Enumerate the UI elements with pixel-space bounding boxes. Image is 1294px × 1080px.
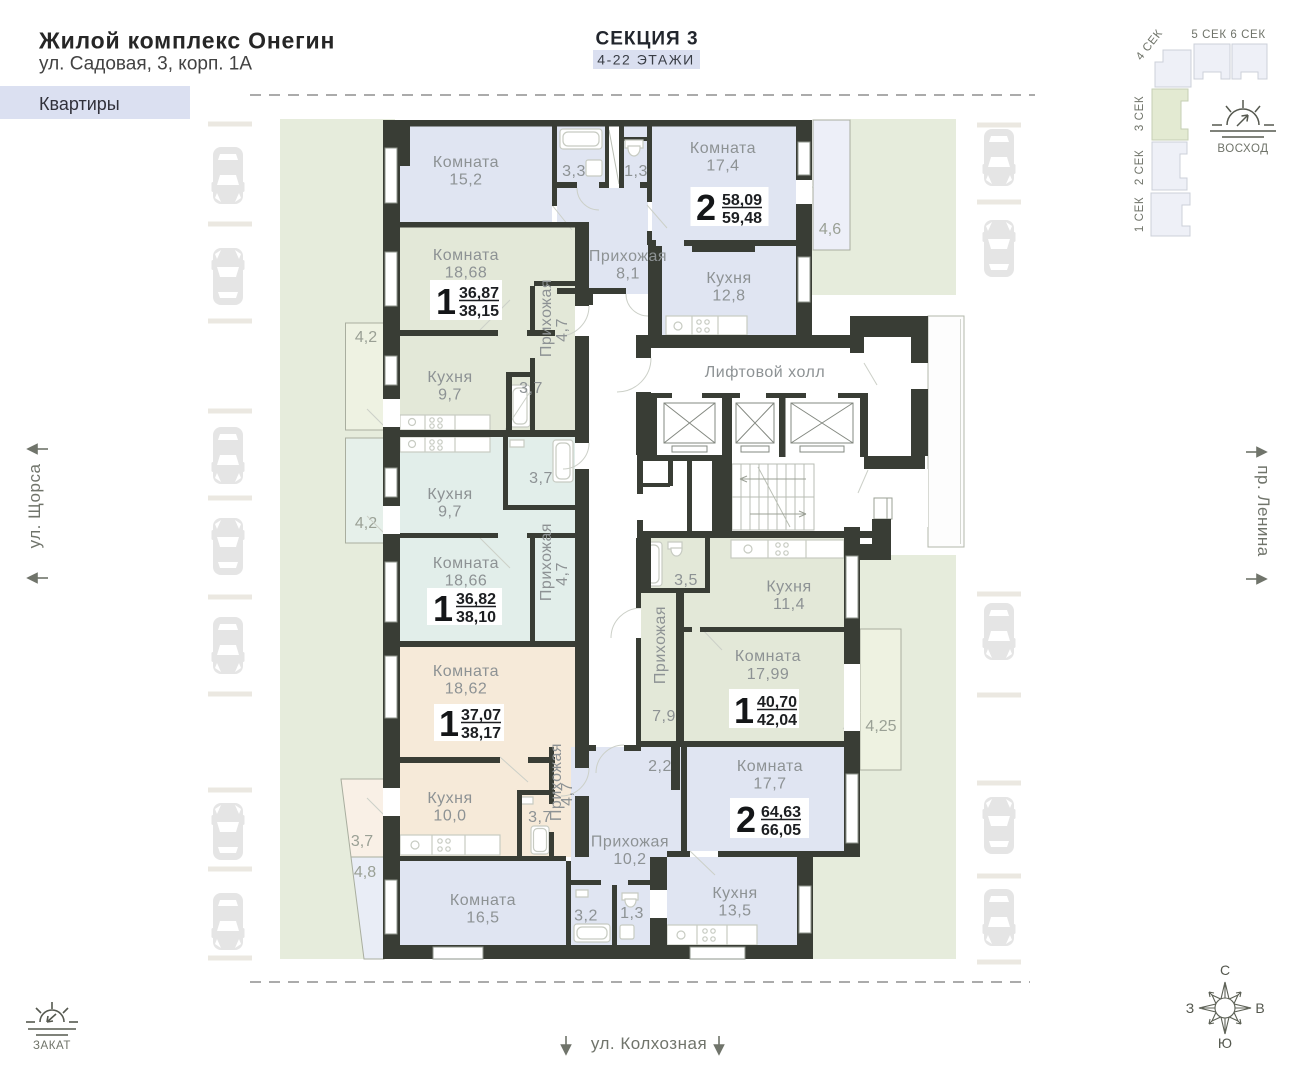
svg-text:9,7: 9,7 bbox=[438, 504, 462, 521]
svg-text:11,4: 11,4 bbox=[773, 596, 805, 613]
svg-text:10,2: 10,2 bbox=[613, 851, 646, 868]
svg-text:Кухня: Кухня bbox=[427, 486, 472, 503]
svg-text:Прихожая: Прихожая bbox=[589, 248, 667, 265]
svg-text:12,8: 12,8 bbox=[712, 288, 745, 305]
svg-text:4,7: 4,7 bbox=[554, 318, 571, 342]
svg-text:15,2: 15,2 bbox=[449, 172, 482, 189]
svg-text:Прихожая: Прихожая bbox=[591, 834, 669, 851]
svg-text:38,17: 38,17 bbox=[461, 725, 501, 742]
svg-text:1,3: 1,3 bbox=[624, 163, 648, 180]
svg-text:Квартиры: Квартиры bbox=[39, 94, 120, 114]
svg-text:10,0: 10,0 bbox=[433, 808, 466, 825]
svg-text:37,07: 37,07 bbox=[461, 707, 501, 724]
svg-text:4,6: 4,6 bbox=[819, 221, 841, 238]
svg-text:18,68: 18,68 bbox=[445, 265, 488, 282]
svg-text:2,2: 2,2 bbox=[648, 758, 672, 775]
svg-text:17,7: 17,7 bbox=[753, 776, 786, 793]
svg-text:1: 1 bbox=[433, 588, 453, 629]
svg-text:17,99: 17,99 bbox=[747, 666, 790, 683]
svg-text:Прихожая: Прихожая bbox=[548, 743, 565, 821]
svg-text:1: 1 bbox=[734, 690, 754, 731]
svg-text:1: 1 bbox=[436, 281, 456, 322]
svg-text:3,7: 3,7 bbox=[519, 380, 543, 397]
svg-text:4-22 ЭТАЖИ: 4-22 ЭТАЖИ bbox=[597, 52, 694, 68]
svg-text:пр. Ленина: пр. Ленина bbox=[1254, 465, 1273, 556]
svg-text:13,5: 13,5 bbox=[718, 903, 751, 920]
svg-text:ул. Колхозная: ул. Колхозная bbox=[591, 1034, 707, 1053]
svg-text:Кухня: Кухня bbox=[766, 579, 811, 596]
svg-text:1 СЕК: 1 СЕК bbox=[1134, 197, 1146, 232]
svg-text:4,7: 4,7 bbox=[554, 562, 571, 586]
svg-text:3,3: 3,3 bbox=[562, 163, 586, 180]
svg-text:5 СЕК: 5 СЕК bbox=[1191, 29, 1226, 41]
svg-text:С: С bbox=[1220, 962, 1230, 978]
svg-text:42,04: 42,04 bbox=[757, 712, 797, 729]
svg-text:Комната: Комната bbox=[690, 140, 756, 157]
svg-text:40,70: 40,70 bbox=[757, 694, 797, 711]
svg-text:ул. Щорса: ул. Щорса bbox=[25, 464, 44, 549]
svg-text:Комната: Комната bbox=[433, 555, 499, 572]
svg-text:3,7: 3,7 bbox=[351, 833, 373, 850]
svg-text:Прихожая: Прихожая bbox=[652, 606, 669, 684]
svg-text:Комната: Комната bbox=[433, 247, 499, 264]
svg-text:4,2: 4,2 bbox=[355, 329, 377, 346]
svg-text:18,62: 18,62 bbox=[445, 681, 488, 698]
svg-text:4,7: 4,7 bbox=[559, 782, 576, 806]
svg-text:7,9: 7,9 bbox=[652, 708, 676, 725]
svg-text:3,2: 3,2 bbox=[574, 908, 598, 925]
svg-text:64,63: 64,63 bbox=[761, 804, 801, 821]
svg-text:38,10: 38,10 bbox=[456, 609, 496, 626]
svg-text:9,7: 9,7 bbox=[438, 387, 462, 404]
svg-text:16,5: 16,5 bbox=[466, 910, 499, 927]
svg-text:2: 2 bbox=[696, 187, 716, 228]
svg-text:ВОСХОД: ВОСХОД bbox=[1217, 143, 1268, 155]
svg-text:Комната: Комната bbox=[433, 154, 499, 171]
svg-text:З: З bbox=[1186, 1000, 1194, 1016]
svg-text:Прихожая: Прихожая bbox=[538, 279, 555, 357]
svg-text:Кухня: Кухня bbox=[712, 885, 757, 902]
svg-text:36,87: 36,87 bbox=[459, 285, 499, 302]
svg-text:Жилой комплекс Онегин: Жилой комплекс Онегин bbox=[38, 28, 335, 54]
svg-text:Комната: Комната bbox=[735, 648, 801, 665]
svg-text:6 СЕК: 6 СЕК bbox=[1230, 29, 1265, 41]
svg-text:2: 2 bbox=[736, 799, 756, 840]
svg-text:Кухня: Кухня bbox=[427, 369, 472, 386]
svg-text:17,4: 17,4 bbox=[706, 158, 739, 175]
svg-text:1: 1 bbox=[439, 703, 459, 744]
svg-text:В: В bbox=[1255, 1000, 1264, 1016]
svg-text:2 СЕК: 2 СЕК bbox=[1134, 150, 1146, 185]
svg-text:3,5: 3,5 bbox=[674, 572, 698, 589]
svg-text:Кухня: Кухня bbox=[427, 790, 472, 807]
svg-text:Комната: Комната bbox=[737, 758, 803, 775]
svg-text:ЗАКАТ: ЗАКАТ bbox=[33, 1040, 71, 1052]
svg-text:4,25: 4,25 bbox=[865, 718, 896, 735]
svg-text:ул. Садовая, 3, корп. 1А: ул. Садовая, 3, корп. 1А bbox=[39, 54, 252, 75]
svg-text:Комната: Комната bbox=[450, 892, 516, 909]
svg-text:4,8: 4,8 bbox=[354, 864, 376, 881]
svg-text:8,1: 8,1 bbox=[616, 266, 640, 283]
svg-text:59,48: 59,48 bbox=[722, 210, 762, 227]
svg-text:Кухня: Кухня bbox=[706, 270, 751, 287]
svg-text:36,82: 36,82 bbox=[456, 591, 496, 608]
svg-text:38,15: 38,15 bbox=[459, 303, 499, 320]
svg-text:58,09: 58,09 bbox=[722, 192, 762, 209]
svg-text:18,66: 18,66 bbox=[445, 573, 488, 590]
svg-text:3,7: 3,7 bbox=[529, 470, 553, 487]
svg-text:1,3: 1,3 bbox=[620, 905, 644, 922]
svg-text:Ю: Ю bbox=[1218, 1035, 1232, 1051]
svg-text:Прихожая: Прихожая bbox=[538, 523, 555, 601]
svg-text:66,05: 66,05 bbox=[761, 822, 801, 839]
svg-text:СЕКЦИЯ 3: СЕКЦИЯ 3 bbox=[595, 29, 698, 50]
svg-text:Лифтовой холл: Лифтовой холл bbox=[705, 364, 825, 381]
svg-text:3 СЕК: 3 СЕК bbox=[1134, 96, 1146, 131]
svg-text:Комната: Комната bbox=[433, 663, 499, 680]
